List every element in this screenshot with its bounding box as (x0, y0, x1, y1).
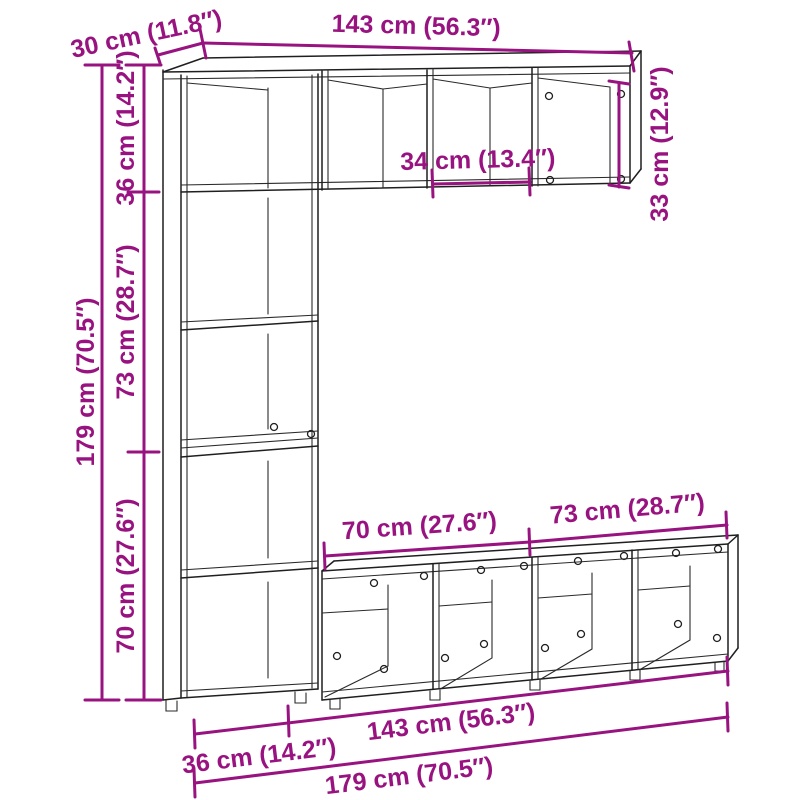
dim-compartment-height-line (609, 81, 629, 188)
dim-bottom-right-span-label: 73 cm (28.7″) (549, 488, 706, 529)
bottom-cabinet (322, 535, 738, 709)
dim-total-width-label: 179 cm (70.5″) (323, 752, 494, 800)
shelf (181, 315, 318, 330)
dim-bookcase-width-label: 36 cm (14.2″) (180, 733, 337, 780)
diagram-stage: 30 cm (11.8″) 143 cm (56.3″) 36 cm (14.2… (0, 0, 800, 800)
dim-bottom-left-span-label: 70 cm (27.6″) (341, 507, 498, 546)
dim-bottom-height-label: 70 cm (27.6″) (112, 498, 140, 653)
screw-holes (546, 91, 625, 184)
dim-middle-height-label: 73 cm (28.7″) (112, 244, 140, 399)
dim-compartment-width-label: 34 cm (13.4″) (400, 144, 556, 176)
dim-compartment-height-label: 33 cm (12.9″) (646, 66, 674, 221)
bookcase-dimension-diagram: 30 cm (11.8″) 143 cm (56.3″) 36 cm (14.2… (0, 0, 800, 800)
dim-top-cabinet-height-label: 36 cm (14.2″) (112, 50, 140, 205)
dim-top-width-label: 143 cm (56.3″) (331, 10, 501, 42)
tall-bookcase (163, 70, 318, 711)
screw-holes (271, 424, 315, 438)
screw-holes (334, 546, 722, 673)
shelf (181, 431, 318, 457)
dim-total-height-label: 179 cm (70.5″) (72, 297, 100, 466)
shelf (181, 561, 318, 578)
dim-depth-label: 30 cm (11.8″) (68, 4, 224, 63)
